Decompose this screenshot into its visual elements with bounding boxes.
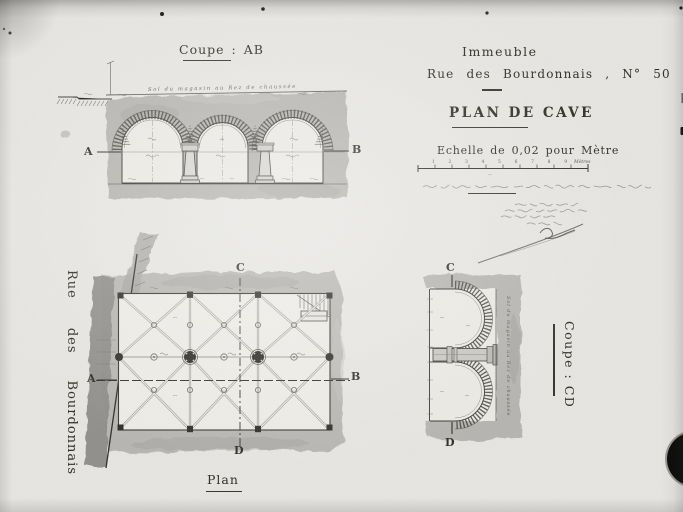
section-cd-title: Coupe : CD [577,318,664,337]
marker-d-section-cd: D [445,436,455,449]
marker-b-plan: B [351,370,360,383]
note-underline [468,193,516,194]
marker-b-section: B [352,143,361,156]
title-address-rule [482,89,502,91]
plan-title-underline [206,491,242,492]
street-name-word3: Bourdonnais [64,381,79,475]
title-address: Rue des Bourdonnais , N° 50 . [427,67,683,81]
marker-a-plan: A [87,372,96,385]
section-cd-title-underline [553,324,555,396]
marker-a-section: A [84,145,93,158]
street-name-word2: des [64,328,79,354]
street-name: RuedesBourdonnais [79,266,284,285]
plan-title: Plan [207,472,239,487]
section-ab-title-underline [183,60,231,61]
section-ab-title: Coupe : AB [179,42,264,57]
street-name-word1: Rue [64,270,79,299]
scale-caption: Echelle de 0,02 pour Mètre [437,144,619,157]
sheet-title-underline [452,127,528,128]
title-building: Immeuble [462,44,538,59]
sheet-title: PLAN DE CAVE [449,105,594,121]
photographed-architectural-drawing: Sol du magasin au Rez de chaussée 1 2 3 … [0,0,683,512]
marker-c-section-cd: C [446,261,455,274]
marker-d-plan: D [234,444,244,457]
